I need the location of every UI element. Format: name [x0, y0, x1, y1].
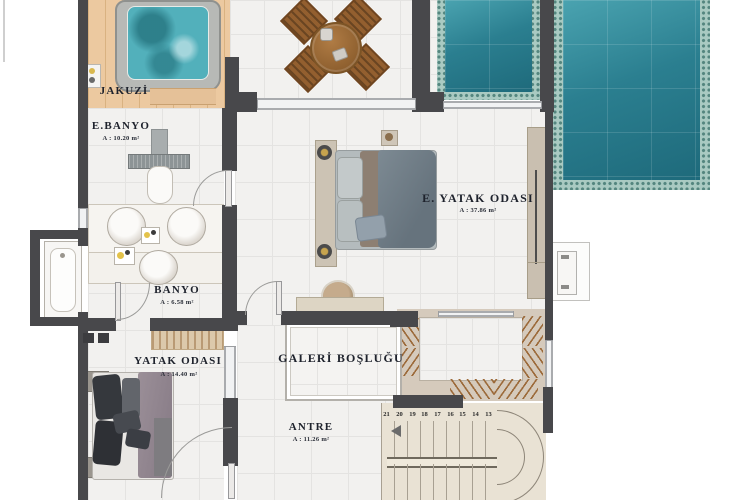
wall: [78, 228, 88, 246]
jacuzzi-water: [127, 6, 209, 80]
wall: [150, 318, 238, 331]
stair-number: 15: [456, 411, 469, 418]
wall: [412, 0, 430, 97]
nightstand: [317, 244, 332, 259]
soap-tray: [141, 227, 160, 244]
window: [438, 311, 514, 317]
room-label-yatak-odasi: YATAK ODASI: [134, 355, 222, 367]
sink: [167, 207, 206, 246]
sink: [139, 250, 178, 285]
room-area-e-yatak-odasi: A : 37.86 m²: [460, 207, 497, 214]
left-pool-water: [445, 0, 532, 92]
accent-pillow: [125, 428, 152, 450]
edge-line: [3, 0, 5, 62]
table-plate: [320, 28, 333, 41]
terrace-sliding-door: [257, 98, 416, 110]
soap: [144, 232, 150, 238]
terrace-floor-strip: [430, 0, 437, 100]
jacuzzi-step: [150, 88, 216, 105]
wall: [540, 0, 554, 112]
room-label-galeri: GALERİ BOŞLUĞU: [278, 351, 404, 366]
master-bed-pillow: [337, 157, 363, 199]
stair-number: 17: [431, 411, 444, 418]
wall: [78, 0, 88, 208]
stair-number: 18: [418, 411, 431, 418]
soap: [125, 250, 130, 255]
pillar: [98, 333, 109, 343]
walk-in-closet-center: [419, 317, 523, 381]
room-area-e-banyo: A : 10.20 m²: [103, 135, 140, 142]
room-area-yatak-odasi: A : 14.40 m²: [161, 371, 198, 378]
stair-number: 14: [469, 411, 482, 418]
fixture-knob: [89, 77, 95, 83]
wall: [222, 205, 237, 320]
soap: [117, 252, 124, 259]
pillar: [83, 333, 94, 343]
room-label-banyo: BANYO: [154, 284, 200, 296]
wall: [390, 311, 418, 327]
room-label-e-banyo: E.BANYO: [92, 120, 150, 132]
ac-unit: [552, 242, 590, 301]
window: [224, 346, 236, 400]
wall: [543, 387, 553, 433]
closet-hanging-rail: [494, 379, 538, 399]
toilet: [147, 166, 173, 204]
wall: [225, 57, 239, 95]
room-label-e-yatak-odasi: E. YATAK ODASI: [422, 191, 534, 206]
wall: [281, 311, 400, 325]
left-pool: [437, 0, 540, 100]
floor-plan: JAKUZİ E.BANYO A : 10.20 m² E. YATAK ODA…: [0, 0, 750, 500]
room-area-banyo: A : 6.58 m²: [160, 299, 193, 306]
fixture-knob: [89, 68, 95, 74]
ceiling-light: [381, 130, 398, 146]
closet-hanging-rail: [522, 316, 543, 346]
wall: [545, 103, 553, 340]
main-pool: [553, 0, 710, 190]
accent-pillow: [354, 214, 387, 242]
window: [545, 340, 553, 389]
wall: [412, 92, 444, 112]
soap-tray: [114, 247, 135, 265]
stair-lower-flight: [381, 464, 498, 500]
wardrobe-divider: [528, 262, 546, 263]
wall: [393, 395, 463, 408]
stair-direction-arrow-icon: [391, 425, 401, 437]
room-label-jakuzi: JAKUZİ: [100, 85, 149, 97]
stair-number: 20: [393, 411, 406, 418]
nightstand: [317, 145, 332, 160]
main-pool-water: [563, 0, 700, 180]
room-area-antre: A : 11.26 m²: [293, 436, 330, 443]
bathtub: [44, 241, 82, 320]
jacuzzi-tub: [115, 0, 221, 92]
stair-number: 13: [482, 411, 495, 418]
stair-number: 21: [380, 411, 393, 418]
wall: [38, 230, 80, 239]
ac-vent: [561, 255, 569, 259]
ac-vent: [561, 285, 569, 289]
wall: [88, 318, 116, 331]
window: [443, 101, 542, 109]
wall: [222, 108, 237, 171]
dining-table: [310, 22, 362, 74]
wardrobe: [527, 127, 547, 299]
wall: [30, 230, 40, 326]
soap: [151, 230, 156, 235]
wall: [78, 328, 88, 500]
room-label-antre: ANTRE: [289, 421, 334, 433]
light-bulb-icon: [385, 133, 393, 141]
closet-hanging-rail: [522, 348, 543, 378]
bathtub-drain: [60, 253, 65, 258]
wardrobe-handle: [535, 170, 537, 264]
wall: [38, 317, 80, 326]
